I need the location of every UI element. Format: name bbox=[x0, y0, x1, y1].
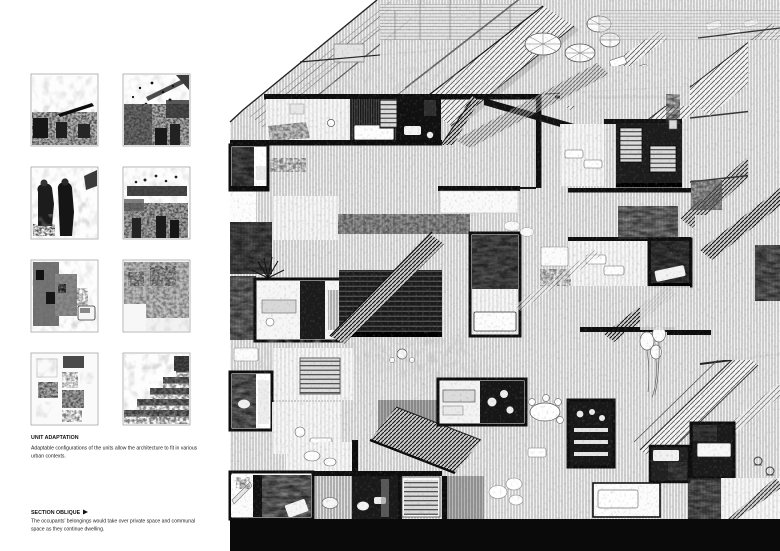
svg-text:urban contexts.: urban contexts. bbox=[31, 454, 66, 460]
svg-text:The occupants’ belongings woul: The occupants’ belongings would take ove… bbox=[31, 519, 195, 525]
svg-text:SECTION OBLIQUE: SECTION OBLIQUE bbox=[31, 510, 81, 516]
svg-text:Adaptable configurations of th: Adaptable configurations of the units al… bbox=[31, 446, 198, 452]
svg-text:space as they continue dwellin: space as they continue dwelling. bbox=[31, 527, 104, 533]
svg-text:UNIT ADAPTATION: UNIT ADAPTATION bbox=[31, 435, 79, 441]
